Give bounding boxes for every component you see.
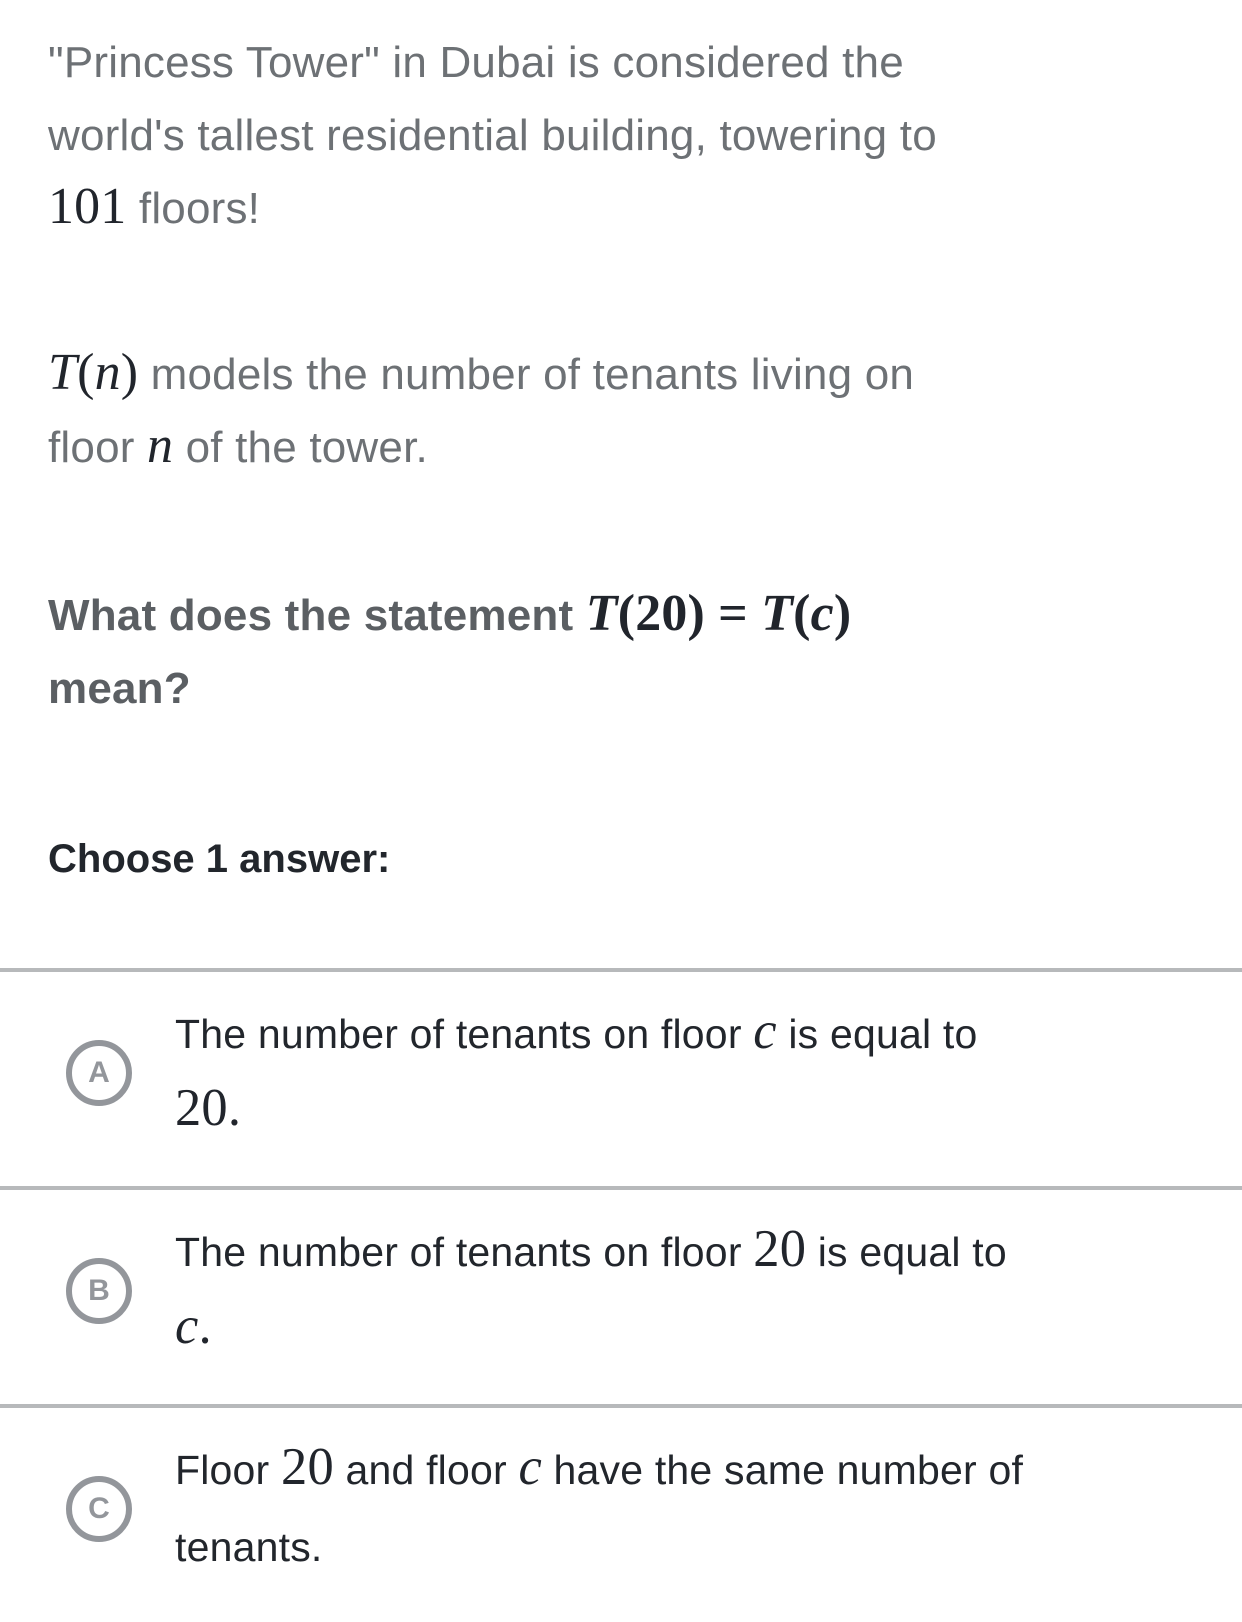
answer-list: A The number of tenants on floor c is eq… [0,968,1242,1622]
answer-text-b: The number of tenants on floor 20 is equ… [175,1214,1007,1368]
answer-c-line-1a: Floor [175,1447,281,1493]
intro-line-3: floors! [126,184,260,233]
math-paren: ) [834,585,852,642]
model-line-2a: floor [48,423,147,472]
radio-button-b[interactable]: B [66,1258,132,1324]
answer-option-a[interactable]: A The number of tenants on floor c is eq… [0,972,1242,1186]
math-c: c [753,1002,777,1060]
answer-c-line-2: tenants. [175,1524,322,1570]
question-prompt: What does the statement T(20) = T(c)mean… [48,579,1182,725]
math-20: 20 [635,585,687,642]
math-T: T [48,344,77,401]
math-paren: ) [121,344,139,401]
math-20: 20 [281,1438,334,1496]
prompt-line-1: What does the statement [48,591,586,640]
answer-a-line-1b: is equal to [777,1011,978,1057]
choose-answer-label: Choose 1 answer: [48,835,1182,883]
math-20: 20 [753,1220,806,1278]
math-T: T [761,585,793,642]
answer-a-line-1a: The number of tenants on floor [175,1011,753,1057]
question-intro-paragraph: "Princess Tower" in Dubai is considered … [48,26,1182,245]
math-paren: ) [688,585,706,642]
math-paren: ( [618,585,636,642]
answer-c-line-1b: and floor [334,1447,519,1493]
math-n: n [147,417,173,474]
radio-button-a[interactable]: A [66,1040,132,1106]
answer-letter: B [88,1274,110,1308]
math-paren: ( [77,344,95,401]
radio-button-c[interactable]: C [66,1476,132,1542]
model-line-1: models the number of tenants living on [138,350,914,399]
answer-option-b[interactable]: B The number of tenants on floor 20 is e… [0,1190,1242,1404]
exercise-question-page: "Princess Tower" in Dubai is considered … [0,0,1242,1620]
math-n: n [95,344,121,401]
answer-c-line-1c: have the same number of [542,1447,1023,1493]
answer-text-c: Floor 20 and floor c have the same numbe… [175,1432,1023,1586]
math-c: c [518,1438,542,1496]
answer-b-line-1a: The number of tenants on floor [175,1229,753,1275]
intro-line-2: world's tallest residential building, to… [48,111,937,160]
math-c: c [175,1297,199,1355]
answer-text-a: The number of tenants on floor c is equa… [175,996,977,1150]
answer-b-line-1b: is equal to [806,1229,1007,1275]
answer-letter: A [88,1056,110,1090]
math-101: 101 [48,178,126,235]
math-c: c [811,585,834,642]
intro-line-1: "Princess Tower" in Dubai is considered … [48,38,904,87]
math-T: T [586,585,618,642]
math-paren: ( [793,585,811,642]
math-period: . [199,1297,212,1355]
math-equals: = [705,585,761,642]
answer-option-c[interactable]: C Floor 20 and floor c have the same num… [0,1408,1242,1622]
question-model-paragraph: T(n) models the number of tenants living… [48,338,1182,484]
model-line-2b: of the tower. [173,423,428,472]
math-20-period: 20. [175,1079,241,1137]
prompt-line-2: mean? [48,664,191,713]
answer-letter: C [88,1492,110,1526]
